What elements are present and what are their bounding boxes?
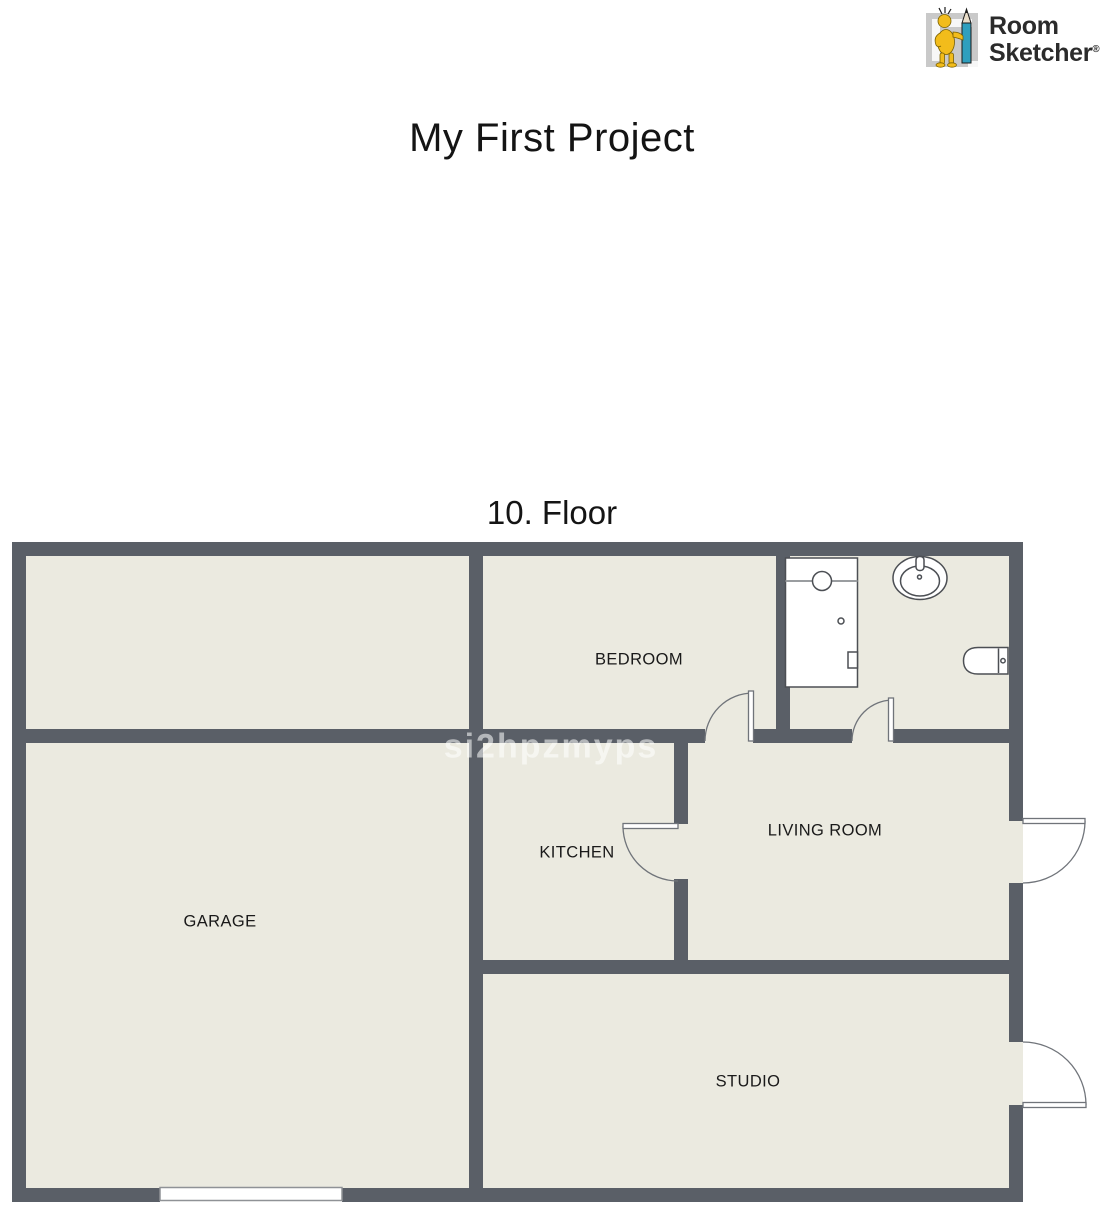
toilet-icon [964, 648, 1009, 675]
living-room-exterior-door [1023, 819, 1085, 884]
sink-icon [893, 557, 947, 600]
studio-exterior-door [1023, 1042, 1086, 1108]
room-label-living-room: LIVING ROOM [768, 822, 882, 841]
floor-name-label: 10. Floor [0, 494, 1104, 532]
floor-area [26, 556, 1023, 1188]
project-title: My First Project [0, 116, 1104, 161]
logo-word-sketcher: Sketcher [989, 39, 1092, 67]
room-label-garage: GARAGE [183, 913, 256, 932]
floorplan-page: { "title": "My First Project", "floor": … [0, 0, 1104, 1210]
roomsketcher-logo: Room Sketcher® [922, 5, 1100, 71]
room-label-kitchen: KITCHEN [539, 844, 614, 863]
registered-trademark-symbol: ® [1092, 44, 1099, 55]
roomsketcher-wordmark: Room Sketcher® [989, 5, 1100, 71]
roomsketcher-mascot-icon [922, 5, 982, 71]
room-label-studio: STUDIO [716, 1073, 781, 1092]
shower-icon [786, 558, 858, 687]
room-label-bedroom: BEDROOM [595, 651, 683, 670]
floor-plan-drawing [0, 530, 1104, 1210]
watermark-text: si2hpzmyps [444, 728, 659, 767]
garage-door-opening [160, 1188, 342, 1201]
logo-word-room: Room [989, 12, 1059, 40]
